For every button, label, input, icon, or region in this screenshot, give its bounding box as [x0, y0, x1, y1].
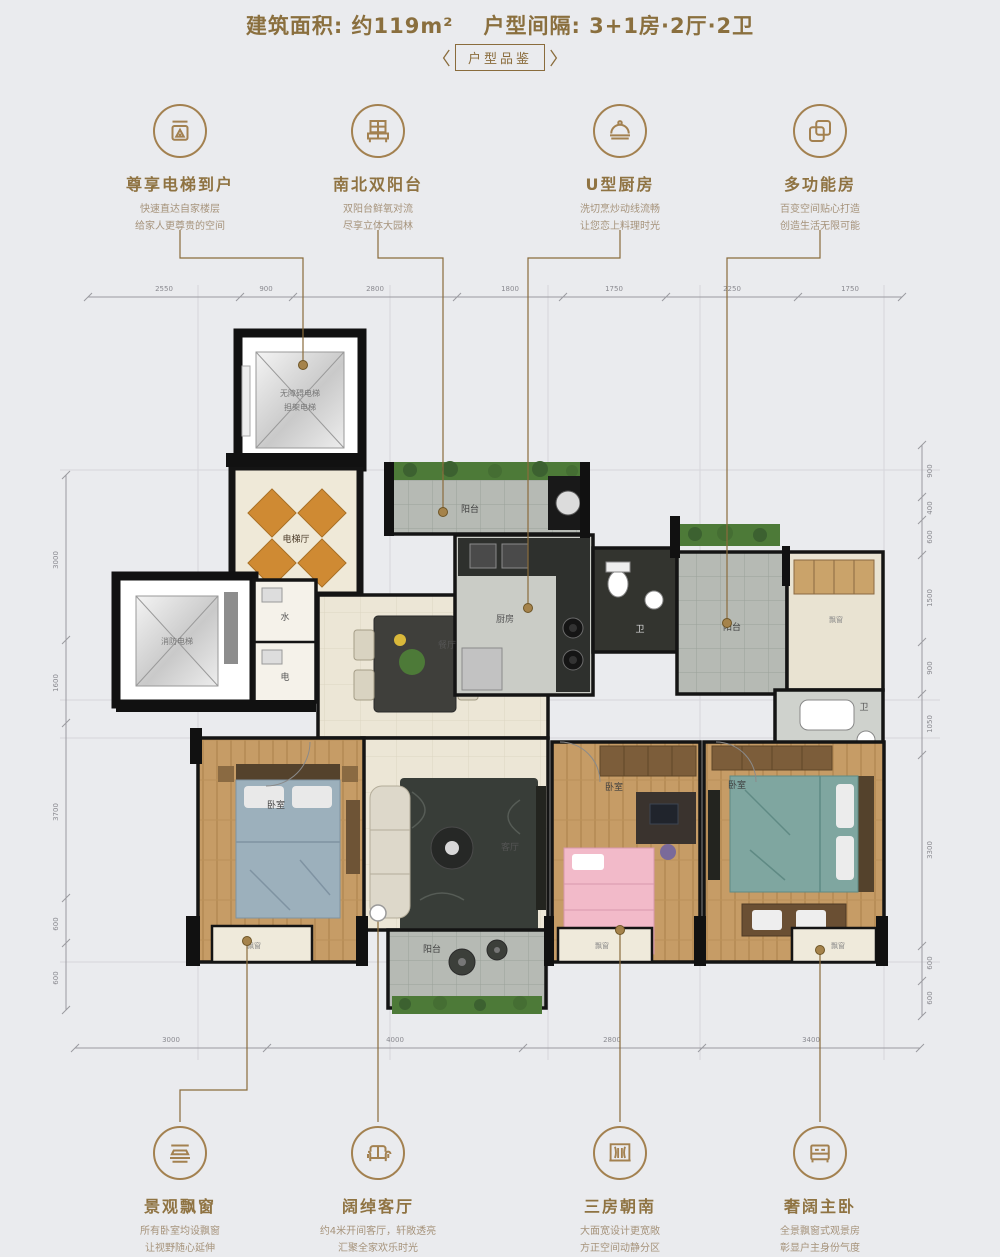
- feature-title: 南北双阳台: [288, 171, 468, 195]
- label-water-shaft: 水: [280, 611, 289, 623]
- feature-title: U型厨房: [530, 171, 710, 195]
- label-bathroom-a: 卫: [635, 625, 644, 635]
- room-utility-shafts: [254, 580, 316, 702]
- dimension-top: [84, 293, 906, 301]
- feature-desc: 约4米开间客厅，轩敞透亮汇聚全家欢乐时光: [288, 1224, 468, 1257]
- dim-label: 3300: [926, 841, 934, 859]
- dim-label: 2250: [723, 285, 741, 293]
- dim-label: 3700: [52, 803, 60, 821]
- label-fire-elevator: 消防电梯: [161, 636, 193, 646]
- label-bedroom-left: 卧室: [267, 799, 285, 811]
- dim-label: 900: [926, 464, 934, 477]
- room-bathroom-a: [593, 548, 677, 652]
- dimension-left: [62, 471, 70, 1014]
- rooms: [116, 333, 884, 1014]
- double-balcony-icon: [351, 104, 405, 158]
- label-kitchen: 厨房: [496, 613, 514, 625]
- feature-title: 三房朝南: [530, 1193, 710, 1217]
- dim-label: 3000: [162, 1036, 180, 1044]
- bay-window-icon: [153, 1126, 207, 1180]
- label-bay-mid: 飘窗: [595, 941, 609, 950]
- label-bedroom-master: 卧室: [728, 779, 746, 791]
- master-bed-icon: [793, 1126, 847, 1180]
- room-bedroom-mid: [552, 742, 700, 962]
- dim-label: 600: [926, 956, 934, 969]
- label-power-shaft: 电: [280, 671, 289, 683]
- room-living: [362, 738, 548, 936]
- label-accessible-elevator: 无障碍电梯: [280, 388, 320, 398]
- room-east-balcony: [677, 524, 787, 694]
- dimension-bottom-labels: 3000 4000 2800 3400: [162, 1036, 820, 1044]
- label-stretcher-elevator: 担架电梯: [284, 402, 316, 412]
- feature-title: 多功能房: [730, 171, 910, 195]
- dim-label: 900: [259, 285, 272, 293]
- feature-desc: 百变空间贴心打造创造生活无限可能: [730, 202, 910, 235]
- feature-master-bedroom: 奢阔主卧 全景飘窗式观景房彰显户主身份气度: [730, 1126, 910, 1257]
- feature-desc: 双阳台鲜氧对流尽享立体大园林: [288, 202, 468, 235]
- label-south-balcony: 阳台: [423, 943, 441, 955]
- label-bedroom-mid: 卧室: [605, 781, 623, 793]
- feature-title: 尊享电梯到户: [90, 171, 270, 195]
- dim-label: 400: [926, 501, 934, 514]
- feature-desc: 所有卧室均设飘窗让视野随心延伸: [90, 1224, 270, 1257]
- dimension-right-labels: 900 400 600 1500 900 1050 3300 600 600: [926, 464, 934, 1004]
- feature-double-balcony: 南北双阳台 双阳台鲜氧对流尽享立体大园林: [288, 104, 468, 235]
- feature-living-room: 阔绰客厅 约4米开间客厅，轩敞透亮汇聚全家欢乐时光: [288, 1126, 468, 1257]
- dim-label: 3000: [52, 551, 60, 569]
- room-south-balcony: [388, 930, 546, 1014]
- dim-label: 4000: [386, 1036, 404, 1044]
- feature-desc: 大面宽设计更宽敞方正空间动静分区: [530, 1224, 710, 1257]
- feature-title: 景观飘窗: [90, 1193, 270, 1217]
- feature-kitchen: U型厨房 洗切烹炒动线流畅让您恋上料理时光: [530, 104, 710, 235]
- label-elevator-hall: 电梯厅: [282, 533, 309, 545]
- south-rooms-icon: [593, 1126, 647, 1180]
- dim-label: 2800: [603, 1036, 621, 1044]
- room-kitchen: [455, 535, 593, 695]
- dim-label: 600: [926, 530, 934, 543]
- feature-bay-window: 景观飘窗 所有卧室均设飘窗让视野随心延伸: [90, 1126, 270, 1257]
- feature-title: 阔绰客厅: [288, 1193, 468, 1217]
- dim-label: 1750: [605, 285, 623, 293]
- label-master-bathroom: 卫: [859, 703, 868, 713]
- dim-label: 1050: [926, 715, 934, 733]
- feature-multi-room: 多功能房 百变空间贴心打造创造生活无限可能: [730, 104, 910, 235]
- dimension-right: [918, 441, 926, 1020]
- dimension-top-labels: 2550 900 2800 1800 1750 2250 1750: [155, 285, 859, 293]
- dim-label: 1750: [841, 285, 859, 293]
- dim-label: 600: [926, 991, 934, 1004]
- feature-desc: 快速直达自家楼层给家人更尊贵的空间: [90, 202, 270, 235]
- feature-desc: 全景飘窗式观景房彰显户主身份气度: [730, 1224, 910, 1257]
- dim-label: 2800: [366, 285, 384, 293]
- dim-label: 3400: [802, 1036, 820, 1044]
- dim-label: 1600: [52, 674, 60, 692]
- dim-label: 1500: [926, 589, 934, 607]
- elevator-icon: [153, 104, 207, 158]
- feature-title: 奢阔主卧: [730, 1193, 910, 1217]
- dimension-bottom: [71, 1044, 924, 1052]
- sofa-icon: [351, 1126, 405, 1180]
- dim-label: 2550: [155, 285, 173, 293]
- dim-label: 600: [52, 971, 60, 984]
- label-bay-master: 飘窗: [831, 941, 845, 950]
- dim-label: 900: [926, 661, 934, 674]
- dimension-left-labels: 3000 1600 3700 600 600: [52, 551, 60, 985]
- dim-label: 600: [52, 917, 60, 930]
- multi-room-icon: [793, 104, 847, 158]
- label-north-balcony: 阳台: [461, 503, 479, 515]
- room-bedroom-left: [198, 738, 364, 962]
- feature-desc: 洗切烹炒动线流畅让您恋上料理时光: [530, 202, 710, 235]
- label-bay-right: 飘窗: [829, 615, 843, 624]
- room-bedroom-master: [704, 742, 884, 962]
- kitchen-cloche-icon: [593, 104, 647, 158]
- feature-elevator: 尊享电梯到户 快速直达自家楼层给家人更尊贵的空间: [90, 104, 270, 235]
- room-north-balcony: [390, 461, 588, 534]
- room-accessible-elevator: [238, 333, 362, 467]
- label-living: 客厅: [501, 841, 519, 853]
- label-dining: 餐厅: [438, 639, 456, 651]
- dim-label: 1800: [501, 285, 519, 293]
- feature-south-rooms: 三房朝南 大面宽设计更宽敞方正空间动静分区: [530, 1126, 710, 1257]
